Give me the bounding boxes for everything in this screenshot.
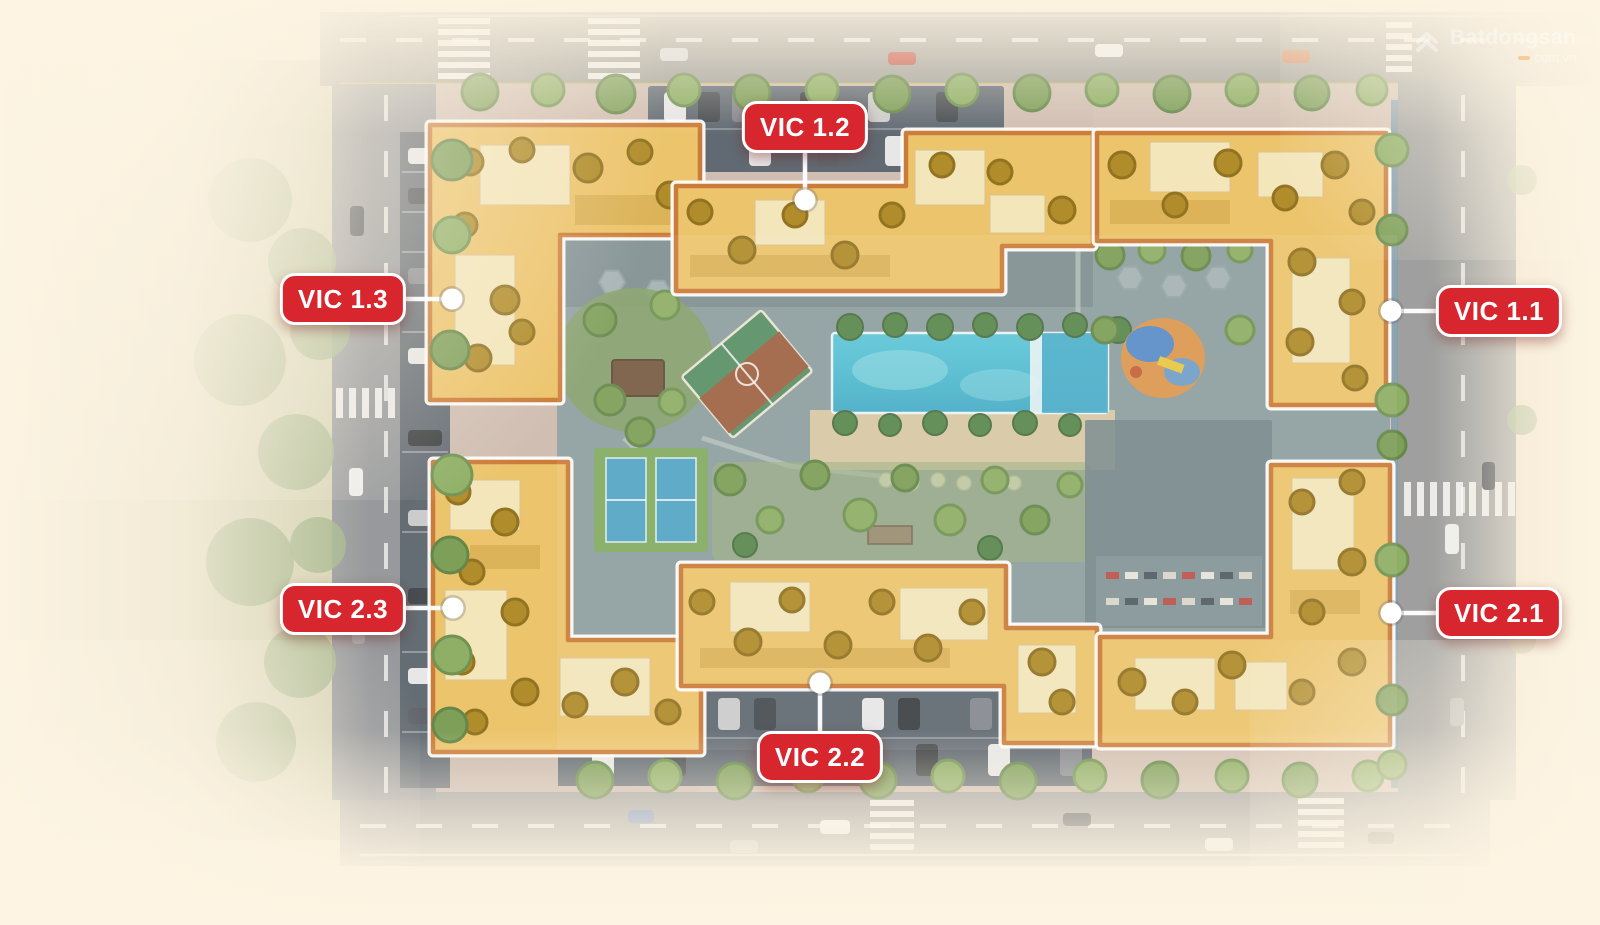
marker-dot-vic-1-3 [439,286,465,312]
building-label-vic-1-2[interactable]: VIC 1.2 [742,101,868,153]
building-label-vic-2-3[interactable]: VIC 2.3 [280,583,406,635]
marker-dot-vic-2-3 [440,595,466,621]
marker-dot-vic-2-2 [807,670,833,696]
marker-dot-vic-2-1 [1378,600,1404,626]
brand-chevron-icon [1412,26,1442,56]
building-label-vic-1-1[interactable]: VIC 1.1 [1436,285,1562,337]
watermark-suffix: com.vn [1534,50,1576,65]
site-plan-screenshot: Batdongsan com.vn VIC 1.2 VIC 1.3 VIC 1.… [0,0,1600,925]
watermark-accent-bar [1518,56,1530,60]
building-label-vic-2-1[interactable]: VIC 2.1 [1436,587,1562,639]
marker-dot-vic-1-2 [792,187,818,213]
building-label-vic-1-3[interactable]: VIC 1.3 [280,273,406,325]
watermark-brand: Batdongsan [1450,26,1576,50]
marker-dot-vic-1-1 [1378,298,1404,324]
building-label-vic-2-2[interactable]: VIC 2.2 [757,731,883,783]
brand-watermark: Batdongsan com.vn [1412,26,1582,65]
